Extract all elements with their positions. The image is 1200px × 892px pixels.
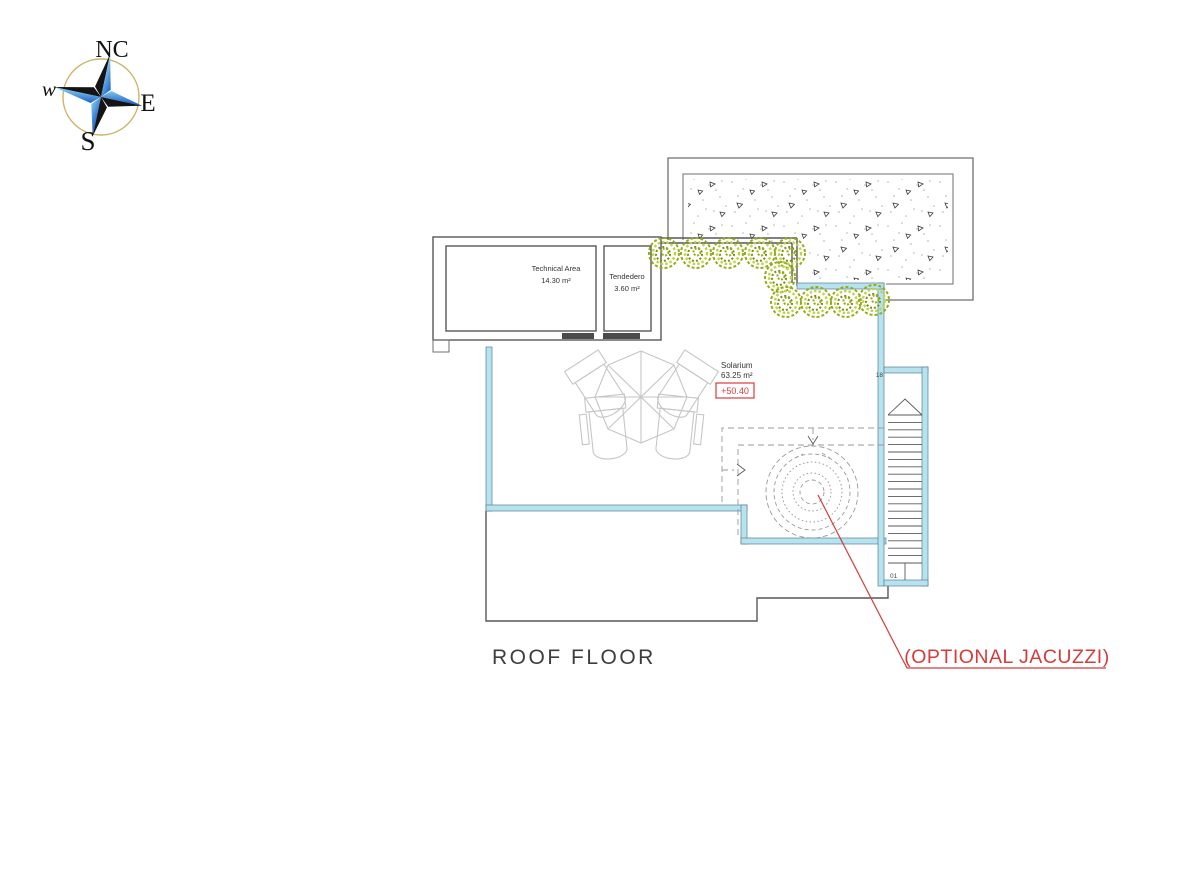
technical-area-room	[446, 246, 596, 331]
balustrade-segment	[486, 505, 747, 511]
bush	[801, 287, 831, 317]
stair-treads	[888, 415, 922, 556]
patio-chair	[652, 394, 705, 462]
stair-top-step-number: 18	[876, 372, 884, 379]
jacuzzi-annotation: (OPTIONAL JACUZZI)	[818, 495, 1110, 668]
jacuzzi-seat-marks	[795, 453, 830, 458]
jacuzzi-outer-rim	[766, 446, 858, 538]
solarium-size: 63.25 m²	[721, 371, 753, 380]
door-threshold	[562, 333, 594, 339]
elevation-value: +50.40	[721, 386, 749, 396]
solarium-name: Solarium	[721, 361, 753, 370]
jacuzzi-seat-ring	[782, 462, 842, 522]
tendedero-size: 3.60 m²	[614, 284, 640, 293]
compass-north-label: NC	[95, 37, 128, 63]
jacuzzi-rim	[774, 454, 850, 530]
gravel-roof-area	[661, 158, 973, 300]
balustrade-segment	[922, 367, 928, 586]
jacuzzi-basin-ring	[793, 473, 831, 511]
parapet-notch	[433, 340, 449, 352]
solarium-labels: Solarium 63.25 m² +50.40	[716, 361, 754, 398]
lower-roof-outline	[486, 511, 888, 621]
balustrade-segment	[741, 538, 886, 544]
compass-rose: NC w E S	[42, 37, 156, 156]
bush	[765, 262, 795, 292]
balustrade-segment	[884, 580, 928, 586]
jacuzzi-centerlines	[722, 428, 813, 470]
technical-room-block: Technical Area 14.30 m² Tendedero 3.60 m…	[433, 237, 661, 352]
compass-west-label: w	[42, 77, 56, 101]
tendedero-name: Tendedero	[609, 272, 644, 281]
technical-area-name: Technical Area	[532, 264, 582, 273]
jacuzzi	[766, 446, 858, 538]
compass-south-label: S	[80, 126, 95, 156]
balustrade-segment	[878, 283, 884, 586]
balustrade-segment	[884, 367, 928, 373]
centerline-arrows	[737, 436, 818, 476]
elevation-marker: +50.40	[716, 383, 754, 398]
patio-furniture	[565, 350, 719, 462]
door-threshold	[603, 333, 640, 339]
annotation-leader-line	[818, 495, 1106, 668]
bush	[649, 238, 679, 268]
compass-east-label: E	[140, 90, 155, 117]
balustrade-segment	[486, 347, 492, 511]
bush	[859, 285, 889, 315]
patio-chair	[578, 394, 631, 462]
jacuzzi-annotation-text: (OPTIONAL JACUZZI)	[904, 646, 1109, 668]
roof-floor-plan: NC w E S Technical Area 14.30 m² Tendede…	[0, 0, 1200, 892]
page: NC w E S Technical Area 14.30 m² Tendede…	[0, 0, 1200, 892]
bush	[831, 287, 861, 317]
floor-title: ROOF FLOOR	[492, 646, 656, 669]
stair-direction-gable	[888, 399, 922, 415]
stair-bottom-step-number: 01	[890, 573, 898, 580]
technical-area-size: 14.30 m²	[541, 276, 571, 285]
glass-balustrade	[486, 283, 928, 586]
